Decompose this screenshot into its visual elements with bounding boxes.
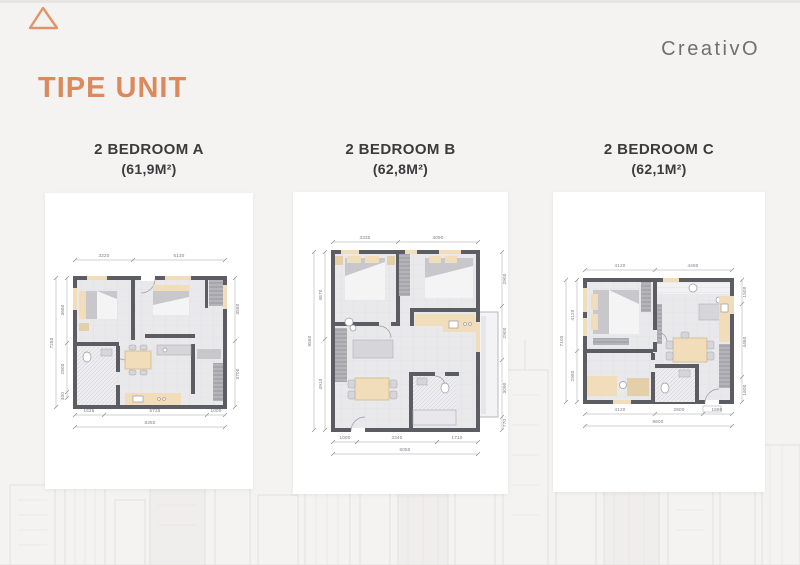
floorplan-card-b: 3330 4090 4670 4910 9580 2900 2900 3090 … (293, 192, 508, 494)
svg-text:3580: 3580 (235, 303, 240, 314)
svg-text:5725: 5725 (149, 408, 160, 413)
svg-text:4460: 4460 (742, 336, 747, 347)
svg-text:4090: 4090 (432, 235, 443, 240)
svg-text:770: 770 (502, 419, 507, 428)
unit-c-heading: 2 BEDROOM C (62,1M²) (553, 140, 765, 179)
svg-text:4120: 4120 (614, 407, 625, 412)
svg-text:3340: 3340 (391, 435, 402, 440)
unit-c-name: 2 BEDROOM C (553, 140, 765, 160)
svg-text:4120: 4120 (570, 309, 575, 320)
triangle-outline-icon (28, 6, 60, 30)
svg-text:4670: 4670 (318, 289, 323, 300)
svg-text:1625: 1625 (83, 408, 94, 413)
svg-text:3220: 3220 (98, 253, 109, 258)
svg-text:4480: 4480 (687, 263, 698, 268)
svg-text:1710: 1710 (451, 435, 462, 440)
svg-text:7100: 7100 (559, 335, 564, 346)
svg-text:3330: 3330 (359, 235, 370, 240)
svg-text:8350: 8350 (144, 420, 155, 425)
svg-text:1500: 1500 (742, 286, 747, 297)
creativo-logo: CreativO (661, 38, 760, 61)
svg-text:4910: 4910 (318, 378, 323, 389)
svg-text:7280: 7280 (49, 337, 54, 348)
svg-text:1000: 1000 (210, 408, 221, 413)
floorplan-c: 4120 4480 4120 2980 7100 1500 4460 1600 … (553, 192, 765, 492)
unit-a-area: (61,9M²) (45, 160, 253, 179)
svg-text:3090: 3090 (502, 382, 507, 393)
unit-c-area: (62,1M²) (553, 160, 765, 179)
floorplan-b: 3330 4090 4670 4910 9580 2900 2900 3090 … (293, 192, 508, 494)
page-title: TIPE UNIT (38, 72, 187, 105)
svg-text:300: 300 (60, 392, 65, 401)
svg-text:3700: 3700 (235, 368, 240, 379)
slide-top-edge (0, 0, 800, 3)
svg-text:3660: 3660 (60, 304, 65, 315)
svg-text:2900: 2900 (502, 327, 507, 338)
svg-text:1600: 1600 (742, 384, 747, 395)
svg-text:5130: 5130 (173, 253, 184, 258)
svg-text:1000: 1000 (339, 435, 350, 440)
floorplan-card-c: 4120 4480 4120 2980 7100 1500 4460 1600 … (553, 192, 765, 492)
floorplan-card-a: 3220 5130 1625 5725 1000 8350 3660 2800 … (45, 193, 253, 489)
unit-a-heading: 2 BEDROOM A (61,9M²) (45, 140, 253, 179)
unit-b-name: 2 BEDROOM B (293, 140, 508, 160)
svg-text:2800: 2800 (60, 363, 65, 374)
floorplan-a: 3220 5130 1625 5725 1000 8350 3660 2800 … (45, 193, 253, 489)
svg-text:2900: 2900 (502, 273, 507, 284)
svg-text:9580: 9580 (307, 335, 312, 346)
unit-a-name: 2 BEDROOM A (45, 140, 253, 160)
unit-b-heading: 2 BEDROOM B (62,8M²) (293, 140, 508, 179)
svg-text:2800: 2800 (673, 407, 684, 412)
svg-text:2980: 2980 (570, 370, 575, 381)
svg-text:8600: 8600 (652, 419, 663, 424)
unit-b-area: (62,8M²) (293, 160, 508, 179)
svg-text:1680: 1680 (711, 407, 722, 412)
svg-text:4120: 4120 (614, 263, 625, 268)
svg-text:6050: 6050 (399, 447, 410, 452)
